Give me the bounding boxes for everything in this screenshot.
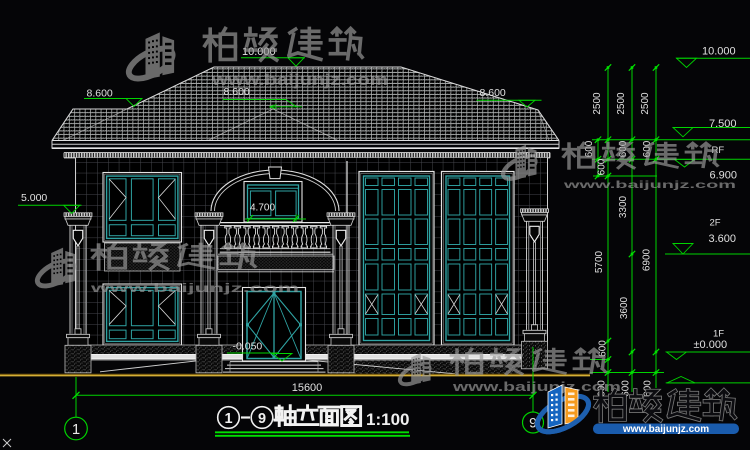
svg-text:15600: 15600: [292, 382, 323, 394]
svg-text:4.700: 4.700: [250, 203, 275, 214]
svg-text:www.baijunjz.com: www.baijunjz.com: [562, 179, 736, 191]
svg-text:2500: 2500: [640, 92, 651, 115]
svg-text:10.000: 10.000: [702, 46, 736, 58]
svg-text:www.baijunjz.com: www.baijunjz.com: [89, 283, 299, 295]
svg-text:1: 1: [224, 411, 232, 427]
svg-text:-0.050: -0.050: [233, 341, 263, 353]
svg-text:1: 1: [72, 421, 80, 438]
svg-text:7.500: 7.500: [709, 118, 737, 130]
svg-text:8.600: 8.600: [87, 88, 113, 100]
svg-text:3.600: 3.600: [709, 233, 737, 245]
svg-text:600: 600: [598, 340, 609, 357]
svg-text:2F: 2F: [710, 218, 721, 229]
svg-text:www.baijunjz.com: www.baijunjz.com: [622, 424, 709, 435]
svg-text:www.baijunjz.com: www.baijunjz.com: [451, 380, 621, 394]
svg-text:±0.000: ±0.000: [694, 339, 728, 351]
svg-text:5.000: 5.000: [21, 192, 47, 204]
svg-text:3300: 3300: [618, 195, 629, 218]
svg-text:1:100: 1:100: [366, 410, 409, 429]
svg-text:1F: 1F: [713, 328, 724, 339]
svg-text:www.baijunjz.com: www.baijunjz.com: [211, 72, 388, 89]
svg-text:2500: 2500: [592, 92, 603, 115]
svg-text:6900: 6900: [642, 248, 653, 271]
svg-text:8.600: 8.600: [480, 87, 506, 99]
svg-text:5700: 5700: [594, 250, 605, 273]
svg-text:3600: 3600: [619, 296, 630, 319]
svg-text:9: 9: [258, 411, 266, 427]
svg-text:2500: 2500: [616, 92, 627, 115]
